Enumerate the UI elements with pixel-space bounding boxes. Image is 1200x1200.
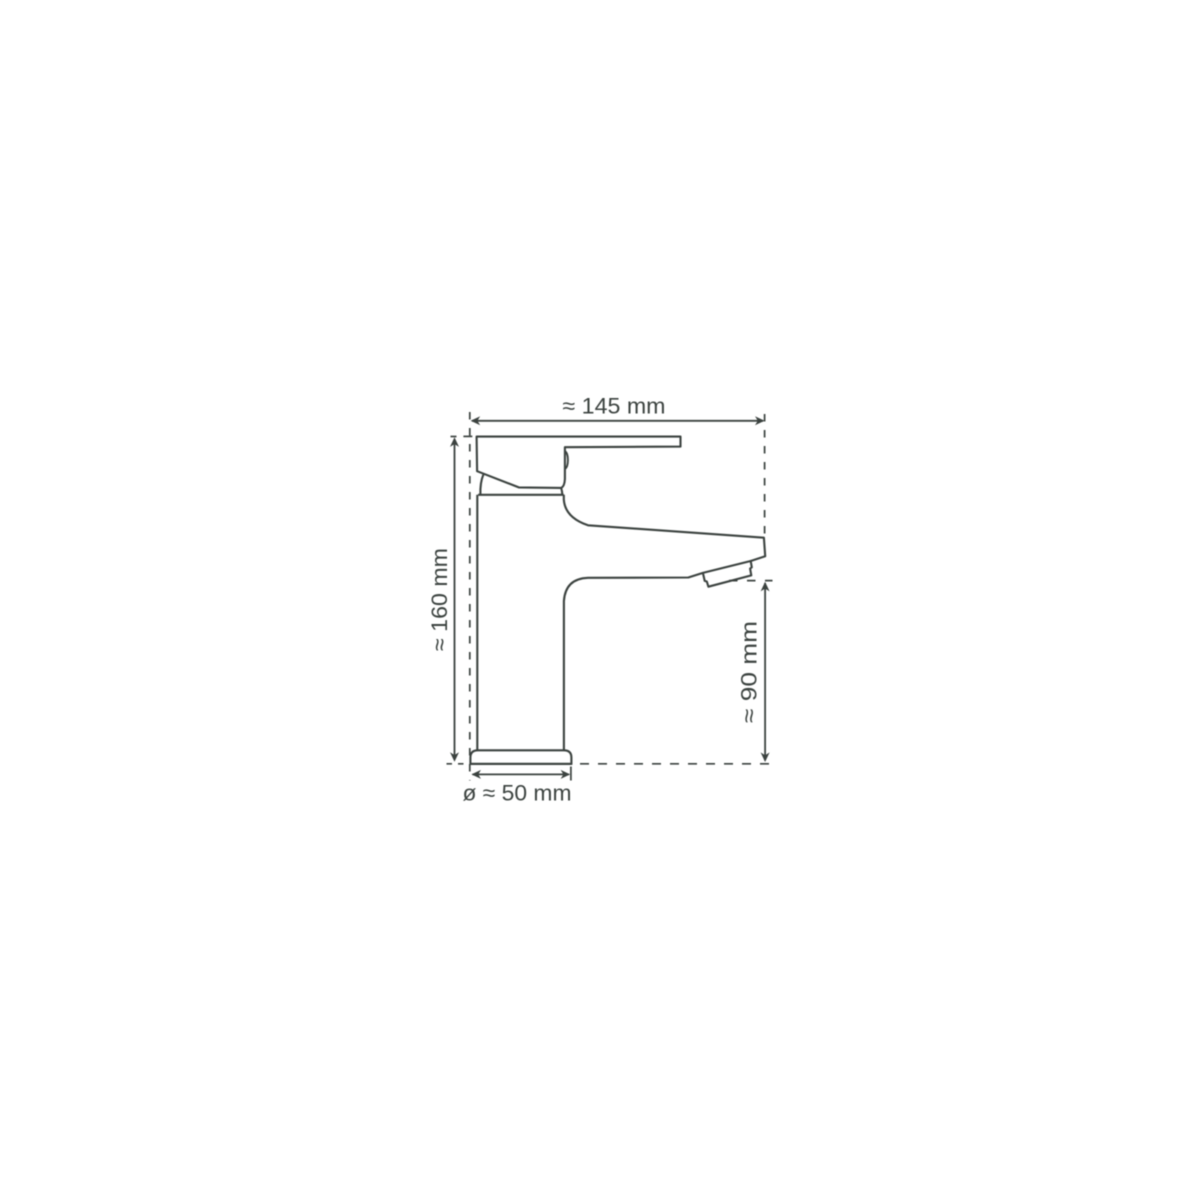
svg-text:≈ 145 mm: ≈ 145 mm <box>563 394 666 419</box>
svg-text:ø ≈ 50 mm: ø ≈ 50 mm <box>463 781 572 806</box>
svg-text:≈ 160 mm: ≈ 160 mm <box>427 548 452 651</box>
svg-text:≈ 90 mm: ≈ 90 mm <box>736 621 761 723</box>
